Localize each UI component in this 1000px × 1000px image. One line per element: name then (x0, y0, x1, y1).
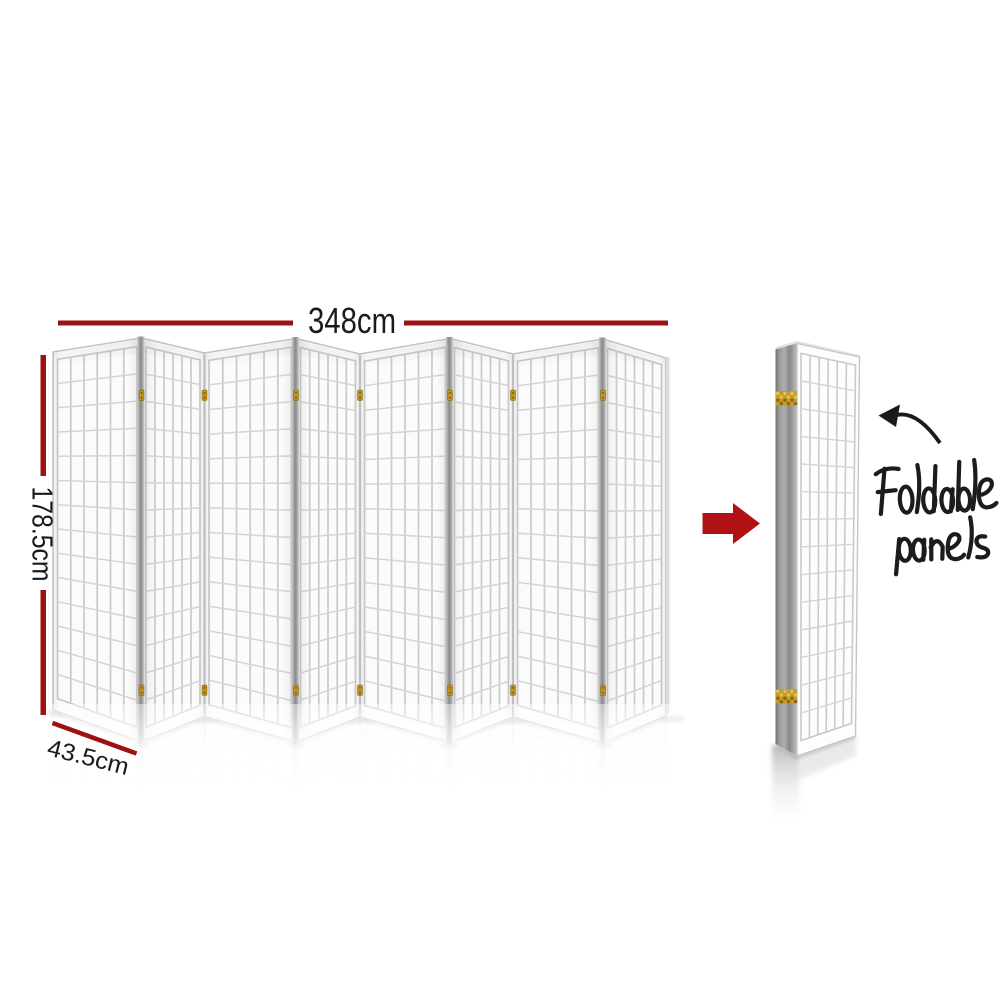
svg-text:348cm: 348cm (308, 300, 396, 341)
svg-text:178.5cm: 178.5cm (26, 487, 58, 582)
